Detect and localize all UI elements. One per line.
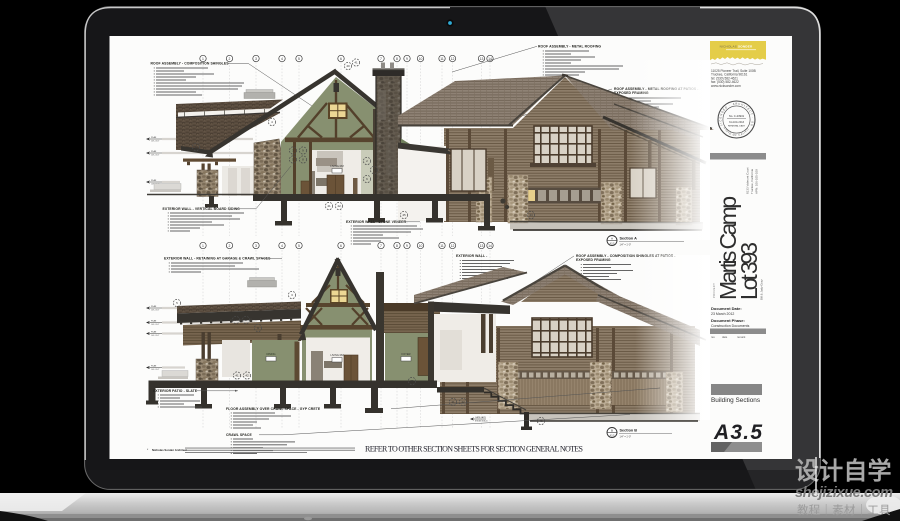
svg-text:5: 5 — [298, 244, 300, 248]
svg-text:4: 4 — [281, 57, 283, 61]
svg-text:SONDER: SONDER — [738, 45, 753, 49]
svg-text:EXTERIOR WALL - RETAINING AT G: EXTERIOR WALL - RETAINING AT GARAGE & CR… — [164, 257, 271, 261]
svg-text:45: 45 — [402, 213, 406, 217]
svg-text:12: 12 — [451, 244, 455, 248]
svg-text:date: date — [722, 335, 728, 339]
svg-text:8: 8 — [396, 57, 398, 61]
svg-text:PLAN: PLAN — [151, 136, 157, 139]
svg-text:1: 1 — [202, 57, 204, 61]
svg-text:2: 2 — [229, 57, 231, 61]
svg-text:10: 10 — [419, 57, 423, 61]
svg-text:41: 41 — [235, 374, 239, 378]
svg-text:设计自学: 设计自学 — [795, 457, 893, 485]
svg-text:remark: remark — [737, 335, 746, 339]
svg-text:PLAN: PLAN — [151, 365, 157, 368]
svg-text:FLOOR ASSEMBLY OVER CRAWL SPAC: FLOOR ASSEMBLY OVER CRAWL SPACE - GYP CR… — [226, 407, 321, 411]
svg-text:LIVING RM: LIVING RM — [330, 164, 343, 168]
svg-text:Document Phase:: Document Phase: — [711, 318, 745, 323]
svg-text:6: 6 — [340, 57, 342, 61]
svg-text:A3.5: A3.5 — [610, 435, 616, 438]
svg-text:42: 42 — [337, 204, 341, 208]
svg-text:11: 11 — [440, 244, 444, 248]
svg-text:5: 5 — [298, 57, 300, 61]
svg-text:9: 9 — [406, 57, 408, 61]
svg-text:PLAN: PLAN — [151, 179, 157, 182]
svg-text:40: 40 — [346, 64, 350, 68]
svg-text:Lot 393: Lot 393 — [736, 242, 762, 300]
svg-text:Section B: Section B — [620, 429, 638, 433]
svg-text:9: 9 — [406, 244, 408, 248]
svg-text:44: 44 — [529, 213, 533, 217]
svg-text:41: 41 — [354, 61, 358, 65]
svg-text:EXTERIOR WALL -: EXTERIOR WALL - — [456, 254, 487, 258]
svg-text:8133 Valmont Court: 8133 Valmont Court — [746, 167, 750, 194]
svg-text:45: 45 — [539, 419, 543, 423]
svg-text:1: 1 — [202, 244, 204, 248]
svg-text:No. C-23931: No. C-23931 — [729, 114, 745, 118]
svg-text:B: B — [611, 428, 613, 432]
svg-text:PLAN: PLAN — [151, 331, 157, 334]
svg-text:12: 12 — [451, 57, 455, 61]
svg-text:NICHOLAS: NICHOLAS — [720, 45, 737, 49]
svg-text:RENEWAL DATE: RENEWAL DATE — [728, 124, 745, 127]
svg-text:shejizixue.com: shejizixue.com — [795, 485, 893, 501]
svg-text:3: 3 — [255, 244, 257, 248]
svg-text:A3.5: A3.5 — [610, 243, 616, 246]
svg-text:A3.5: A3.5 — [713, 421, 762, 444]
svg-text:23 March 2012: 23 March 2012 — [711, 312, 734, 316]
svg-text:EXPOSED FRAMING: EXPOSED FRAMING — [576, 258, 611, 262]
svg-text:2: 2 — [229, 244, 231, 248]
svg-text:109-1 3/4": 109-1 3/4" — [151, 155, 160, 157]
svg-text:109-1 3/4": 109-1 3/4" — [151, 324, 160, 326]
svg-text:CRAWL SPACE: CRAWL SPACE — [226, 433, 252, 437]
svg-text:EXTERIOR PATIO - SLATE: EXTERIOR PATIO - SLATE — [153, 389, 198, 393]
svg-text:EXTERIOR WALL - VERTICAL BOARD: EXTERIOR WALL - VERTICAL BOARD SIDING — [163, 207, 241, 211]
svg-text:APN: 106-105-109: APN: 106-105-109 — [755, 169, 759, 194]
svg-text:ROOF ASSEMBLY - COMPOSITION SH: ROOF ASSEMBLY - COMPOSITION SHINGLES — [151, 62, 230, 66]
svg-text:4: 4 — [281, 244, 283, 248]
svg-text:109-1 3/4": 109-1 3/4" — [151, 335, 160, 337]
svg-text:41: 41 — [327, 204, 331, 208]
svg-text:BREAK 4EA-00: BREAK 4EA-00 — [475, 420, 488, 423]
svg-text:Document Date:: Document Date: — [711, 306, 742, 311]
svg-text:rev.: rev. — [711, 335, 716, 339]
svg-text:PLAN: PLAN — [151, 150, 157, 153]
svg-text:PLAN: PLAN — [151, 305, 157, 308]
svg-text:PLAN: PLAN — [151, 320, 157, 323]
svg-text:Nicholas Sonder Architect: Nicholas Sonder Architect — [152, 448, 187, 452]
svg-text:LIVING RM: LIVING RM — [330, 353, 343, 357]
svg-text:10: 10 — [194, 145, 198, 149]
svg-text:13: 13 — [480, 57, 484, 61]
svg-text:Section A: Section A — [620, 237, 638, 241]
svg-text:7: 7 — [380, 57, 382, 61]
svg-text:REFER TO OTHER SECTION SHEETS: REFER TO OTHER SECTION SHEETS FOR SECTIO… — [365, 445, 583, 454]
svg-text:教程｜素材｜工具: 教程｜素材｜工具 — [797, 503, 891, 517]
svg-text:42: 42 — [461, 400, 465, 404]
svg-text:A: A — [611, 236, 613, 240]
svg-text:ROOF ASSEMBLY - METAL ROOFING: ROOF ASSEMBLY - METAL ROOFING — [538, 45, 601, 49]
svg-text:1/4" = 1'-0": 1/4" = 1'-0" — [620, 436, 632, 439]
svg-text:7: 7 — [380, 244, 382, 248]
svg-text:Building Sections: Building Sections — [711, 397, 760, 404]
svg-text:42: 42 — [245, 374, 249, 378]
svg-text:Bill & Judy Gray: Bill & Judy Gray — [760, 279, 764, 300]
svg-text:DINING: DINING — [266, 352, 275, 356]
svg-text:13: 13 — [480, 244, 484, 248]
svg-text:6: 6 — [340, 244, 342, 248]
svg-text:Construction Documents: Construction Documents — [711, 324, 750, 328]
svg-text:FOYER: FOYER — [402, 352, 411, 356]
svg-text:1/4" = 1'-0": 1/4" = 1'-0" — [620, 244, 632, 247]
svg-text:EXTERIOR WALL - STONE VENEER: EXTERIOR WALL - STONE VENEER — [346, 220, 407, 224]
svg-text:Truckee, California: Truckee, California — [750, 169, 754, 194]
svg-text:41: 41 — [451, 400, 455, 404]
svg-text:35: 35 — [410, 379, 414, 383]
svg-text:14: 14 — [488, 244, 492, 248]
svg-text:CAPILLARY: CAPILLARY — [475, 416, 487, 419]
svg-text:109-1 3/4": 109-1 3/4" — [151, 310, 160, 312]
svg-text:www.nicksonder.com: www.nicksonder.com — [711, 84, 741, 88]
svg-text:8: 8 — [396, 244, 398, 248]
svg-text:3: 3 — [255, 57, 257, 61]
svg-text:109-1 3/4": 109-1 3/4" — [151, 369, 160, 371]
svg-text:10: 10 — [419, 244, 423, 248]
svg-text:109-1 3/4": 109-1 3/4" — [151, 141, 160, 143]
svg-text:31 AUG 2013: 31 AUG 2013 — [729, 121, 745, 124]
svg-text:11: 11 — [440, 57, 444, 61]
